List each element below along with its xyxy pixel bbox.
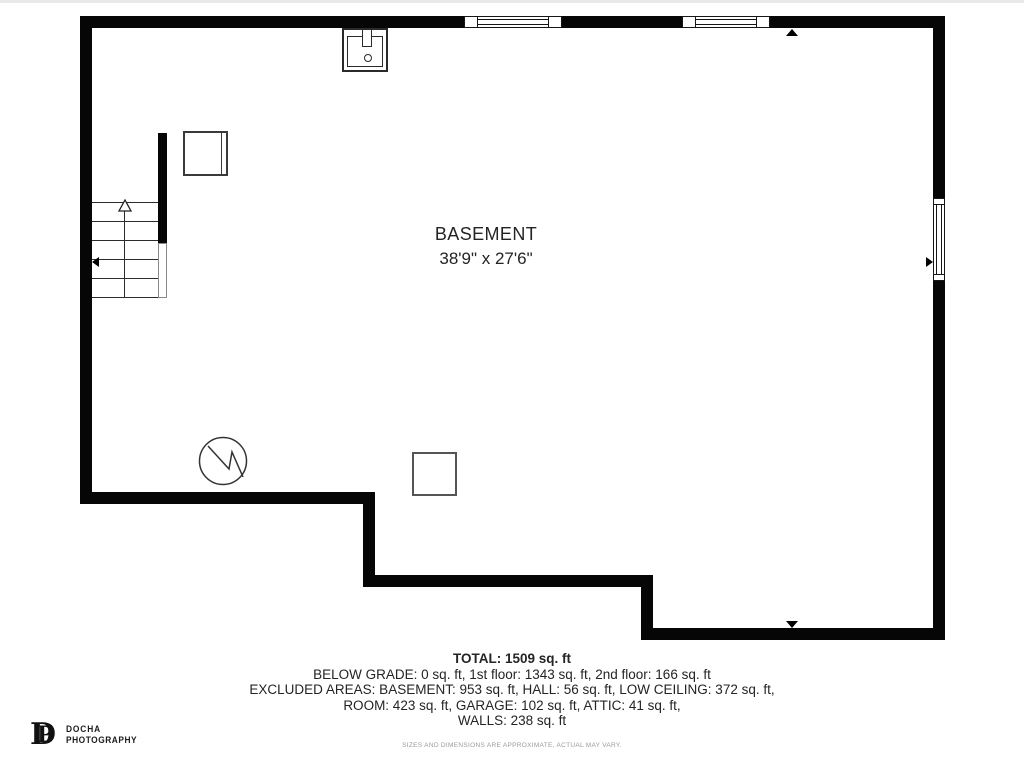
stairs-up-arrow-icon <box>116 199 134 213</box>
stair-tread-line <box>92 240 158 241</box>
room-label: BASEMENT 38'9" x 27'6" <box>336 224 636 269</box>
appliance-divider-line <box>221 133 222 174</box>
total-area-line: TOTAL: 1509 sq. ft <box>0 651 1024 667</box>
window-frame-line <box>756 17 757 27</box>
photography-logo: D P DOCHA PHOTOGRAPHY <box>30 719 147 751</box>
stair-tread-line <box>92 259 158 260</box>
window-top-2 <box>682 16 770 28</box>
window-pane-line <box>941 205 942 274</box>
walls-area-line: WALLS: 238 sq. ft <box>0 713 1024 729</box>
excluded-areas-line-1: EXCLUDED AREAS: BASEMENT: 953 sq. ft, HA… <box>0 682 1024 698</box>
window-frame-line <box>934 274 944 275</box>
wall-middle-step <box>363 575 653 587</box>
stair-tread-line <box>92 221 158 222</box>
sink-icon <box>342 28 388 72</box>
stair-tread-line <box>92 278 158 279</box>
below-grade-line: BELOW GRADE: 0 sq. ft, 1st floor: 1343 s… <box>0 667 1024 683</box>
logo-brand-line2: PHOTOGRAPHY <box>66 735 137 746</box>
sink-drain <box>364 54 372 62</box>
direction-marker-icon <box>92 257 99 267</box>
stair-rail-segment <box>158 243 167 298</box>
direction-marker-icon <box>786 621 798 628</box>
wall-step-vertical-1 <box>363 492 375 587</box>
water-heater-icon <box>198 436 248 486</box>
room-dimensions: 38'9" x 27'6" <box>336 249 636 269</box>
logo-monogram-icon: D P <box>30 719 62 751</box>
stair-tread-line <box>92 297 158 298</box>
logo-monogram-p: P <box>37 720 54 750</box>
area-summary: TOTAL: 1509 sq. ft BELOW GRADE: 0 sq. ft… <box>0 651 1024 729</box>
window-pane-line <box>696 19 756 20</box>
logo-brand-line1: DOCHA <box>66 724 137 735</box>
wall-right <box>933 16 945 640</box>
image-edge-artifact <box>0 0 1024 3</box>
window-pane-line <box>478 24 548 25</box>
room-name: BASEMENT <box>336 224 636 245</box>
appliance-square <box>183 131 228 176</box>
window-pane-line <box>696 24 756 25</box>
direction-marker-icon <box>786 29 798 36</box>
support-post-square <box>412 452 457 496</box>
window-top-1 <box>464 16 562 28</box>
wall-bottom-right <box>641 628 945 640</box>
window-frame-line <box>548 17 549 27</box>
excluded-areas-line-2: ROOM: 423 sq. ft, GARAGE: 102 sq. ft, AT… <box>0 698 1024 714</box>
window-pane-line <box>478 19 548 20</box>
wall-left <box>80 16 92 504</box>
floorplan-page: BASEMENT 38'9" x 27'6" TOTAL: 1509 sq. f… <box>0 0 1024 768</box>
wall-stairwell <box>158 133 167 243</box>
direction-marker-icon <box>926 257 933 267</box>
window-pane-line <box>936 205 937 274</box>
wall-bottom-left <box>80 492 375 504</box>
disclaimer-text: SIZES AND DIMENSIONS ARE APPROXIMATE, AC… <box>0 742 1024 749</box>
stair-direction-line <box>124 202 125 298</box>
logo-brand-text: DOCHA PHOTOGRAPHY <box>66 724 137 746</box>
sink-faucet <box>362 29 372 47</box>
window-right <box>933 198 945 281</box>
